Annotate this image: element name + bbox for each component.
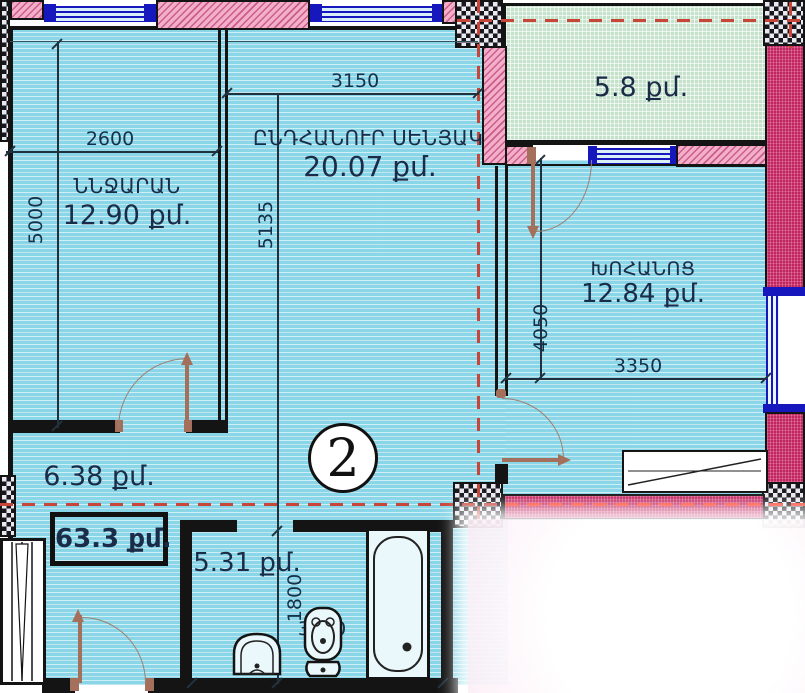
- bathroom-area-label: 5.31 քմ.: [167, 548, 327, 578]
- wall-pier-checker-top-right: [763, 0, 805, 46]
- living-window-reveal: [228, 41, 478, 42]
- kitchen-area-label: 12.84 քմ.: [558, 279, 728, 309]
- kitchen-door-leaf: [502, 458, 562, 462]
- living-window-cap-left: [310, 4, 322, 22]
- bathroom-right-wall: [441, 520, 453, 685]
- boundary-dash-horizontal-bright: [505, 503, 805, 506]
- bedroom-door-leaf: [185, 358, 189, 428]
- boundary-dash-corner: [789, 2, 792, 48]
- total-area-label: 63.3 քմ.: [55, 524, 172, 554]
- entry-door-jamb: [145, 678, 154, 691]
- entry-door-arrow: [72, 609, 84, 622]
- kitchen-door-arrow: [558, 454, 571, 466]
- balcony-area-label: 5.8 քմ.: [561, 72, 721, 103]
- toilet: [300, 606, 346, 680]
- kitchen-balcony-window: [590, 148, 678, 164]
- dim-label-3150: 3150: [325, 70, 385, 92]
- hallway-area-label: 6.38 քմ.: [19, 461, 179, 492]
- wall-left: [8, 28, 13, 540]
- apartment-number-badge: 2: [308, 423, 378, 493]
- boundary-dash-balcony-top: [457, 19, 805, 22]
- kitchen-side-window: [766, 294, 779, 406]
- bedroom-name-label: ՆՆՋԱՐԱՆ: [27, 174, 227, 198]
- dim-line-3350: [505, 378, 767, 380]
- entry-door-leaf: [78, 615, 82, 683]
- bedroom-window-reveal: [10, 41, 217, 42]
- kitchen-name-label: ԽՈՀԱՆՈՑ: [563, 258, 723, 280]
- kitchen-door-jamb: [496, 389, 506, 398]
- wall-pier-checker-left: [0, 475, 16, 537]
- wall-hall-kitchen-upper: [495, 166, 508, 396]
- bedroom-window-cap-left: [44, 4, 56, 22]
- wall-living-balcony: [482, 46, 507, 165]
- dim-line-5000: [57, 42, 59, 428]
- bedroom-door-arrow: [181, 352, 193, 365]
- balcony-door-arrow: [527, 226, 539, 239]
- dim-label-2600: 2600: [80, 128, 140, 150]
- sink: [228, 628, 286, 676]
- dim-label-4050: 4050: [530, 298, 552, 358]
- bathroom-left-wall: [180, 520, 192, 685]
- boundary-dash-vertical: [477, 0, 480, 528]
- dim-line-3150: [226, 93, 479, 95]
- wall-right-upper: [765, 44, 805, 293]
- adjacent-unit-faded: [468, 519, 805, 693]
- dim-line-2600: [6, 151, 218, 153]
- wall-pier-top-middle: [156, 0, 310, 30]
- dim-line-5135-1800: [277, 94, 279, 684]
- bathtub: [366, 528, 430, 680]
- dim-label-5135: 5135: [255, 195, 277, 255]
- wall-hall-kitchen-lower: [495, 464, 508, 484]
- kitchen-bottom-wall: [503, 494, 765, 520]
- dim-label-3350: 3350: [608, 355, 668, 377]
- wall-bedroom-bottom-left: [10, 420, 120, 433]
- floor-plan: 2600 5000 3150 5135 4050 3350 1800 3000: [0, 0, 805, 693]
- kitchen-counter: [622, 450, 768, 493]
- wall-right-lower: [765, 412, 805, 484]
- bedroom-window-cap-right: [144, 4, 156, 22]
- balcony-door-leaf: [531, 160, 535, 230]
- living-room-name-label: ԸՆԴՀԱՆՈՒՐ ՍԵՆՅԱԿ: [253, 126, 463, 150]
- wall-pier-top-left-pink: [10, 0, 44, 20]
- total-area-box: 63.3 քմ.: [50, 512, 168, 566]
- living-room-area-label: 20.07 քմ.: [285, 150, 455, 183]
- bedroom-window: [44, 6, 156, 22]
- bedroom-area-label: 12.90 քմ.: [27, 200, 227, 231]
- wall-bedroom-bottom-right: [186, 420, 228, 433]
- kitchen-side-window-cap-top: [763, 287, 805, 296]
- wardrobe: [0, 538, 46, 685]
- living-window: [310, 6, 442, 22]
